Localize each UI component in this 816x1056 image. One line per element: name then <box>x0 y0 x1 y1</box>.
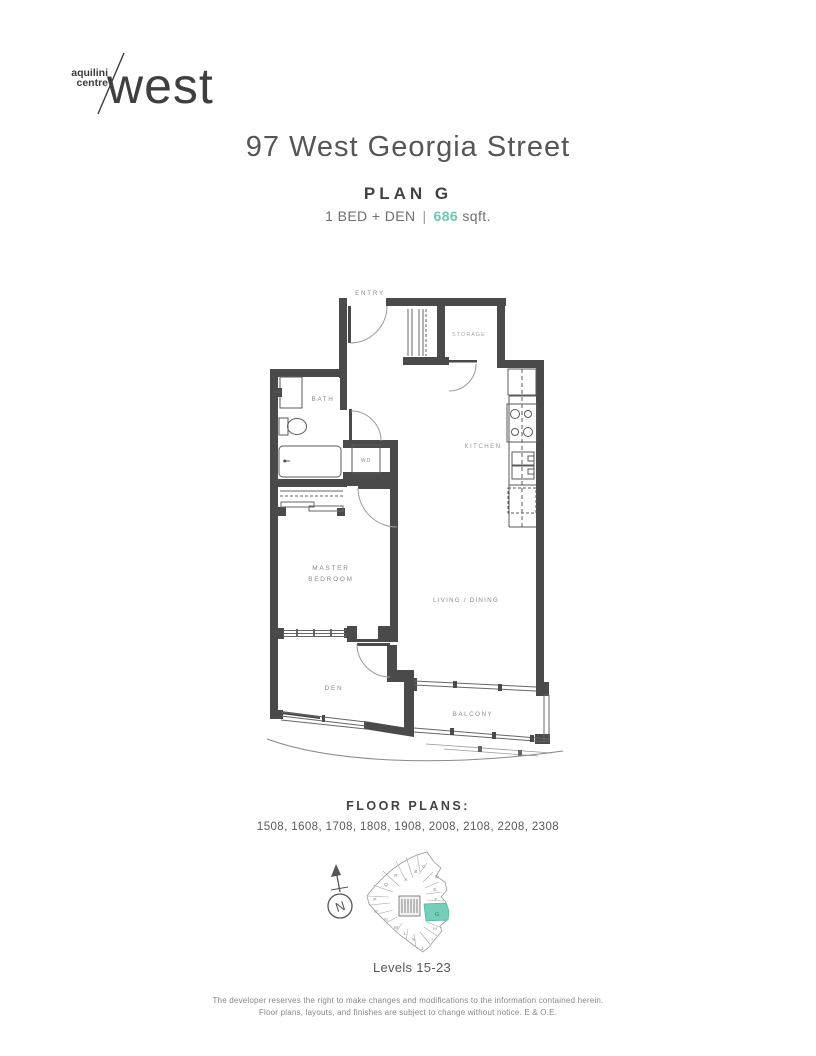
entry-door-arc <box>350 306 387 343</box>
floor-plan-drawing: ENTRY STORAGE BATH WD KITCHEN MASTER BED… <box>255 278 570 770</box>
bath-door-leaf <box>349 409 352 441</box>
kitchen-fixtures <box>507 369 537 527</box>
storage-door-leaf <box>449 360 477 363</box>
building-key-plan: G C D E F H I J K L M N O P Q R A B <box>367 852 449 952</box>
entry-door-leaf <box>348 306 351 343</box>
label-den: DEN <box>325 685 344 692</box>
den-door-arc <box>357 644 390 677</box>
svg-text:B: B <box>414 869 417 875</box>
label-master-1: MASTER <box>312 565 349 572</box>
svg-text:L: L <box>404 931 407 937</box>
svg-text:Q: Q <box>384 882 388 888</box>
north-compass: N <box>328 864 352 918</box>
logo-name: west <box>106 58 214 114</box>
highlighted-unit-letter: G <box>435 912 439 918</box>
disclaimer-line-2: Floor plans, layouts, and finishes are s… <box>0 1007 816 1019</box>
site-key-plan: N G C D E F H I J K <box>318 848 463 966</box>
plan-name: PLAN G <box>0 184 816 204</box>
plan-sqft-unit: sqft. <box>462 208 490 224</box>
svg-text:D: D <box>435 874 439 880</box>
toilet-bowl <box>288 419 307 435</box>
svg-text:N: N <box>384 917 388 923</box>
disclaimer-line-1: The developer reserves the right to make… <box>0 995 816 1007</box>
svg-text:R: R <box>394 873 398 879</box>
subtitle-separator: | <box>416 208 434 224</box>
label-kitchen: KITCHEN <box>465 443 502 450</box>
storage-door-arc <box>449 364 476 391</box>
page-title: 97 West Georgia Street <box>0 131 816 164</box>
svg-text:O: O <box>374 909 378 915</box>
walls <box>270 298 550 744</box>
levels-label: Levels 15-23 <box>312 960 512 975</box>
floor-plans-heading: FLOOR PLANS: <box>0 799 816 813</box>
plan-subtitle: 1 BED + DEN|686 sqft. <box>0 208 816 224</box>
label-master-2: BEDROOM <box>308 576 354 583</box>
svg-text:M: M <box>394 925 398 931</box>
label-balcony: BALCONY <box>453 711 494 718</box>
label-storage: STORAGE <box>452 332 486 338</box>
windows <box>267 629 563 761</box>
key-plan-core <box>399 896 420 916</box>
label-living-dining: LIVING / DINING <box>433 597 499 604</box>
north-letter: N <box>333 898 347 915</box>
svg-text:E: E <box>433 887 436 893</box>
den-door-leaf <box>357 643 390 646</box>
label-bath: BATH <box>312 396 335 403</box>
svg-text:H: H <box>433 926 437 932</box>
svg-text:C: C <box>422 864 426 870</box>
bedroom-door-leaf <box>358 486 397 489</box>
stove <box>507 404 537 442</box>
toilet-tank <box>279 418 288 435</box>
label-wd: WD <box>361 458 371 464</box>
building-edge-curve <box>267 739 563 761</box>
plan-sqft-value: 686 <box>434 208 459 224</box>
room-labels: ENTRY STORAGE BATH WD KITCHEN MASTER BED… <box>308 290 501 718</box>
logo: aquilini centre west <box>64 50 234 118</box>
svg-text:F: F <box>435 897 438 903</box>
bath-door-arc <box>351 411 381 441</box>
disclaimer: The developer reserves the right to make… <box>0 995 816 1018</box>
bath-sink <box>280 377 302 408</box>
flyer-page: aquilini centre west 97 West Georgia Str… <box>0 0 816 1056</box>
floor-plans-list: 1508, 1608, 1708, 1808, 1908, 2008, 2108… <box>0 821 816 833</box>
kitchen-sink <box>512 452 534 465</box>
label-entry: ENTRY <box>355 290 385 297</box>
logo-graphic: aquilini centre west <box>64 50 234 118</box>
logo-line2: centre <box>76 77 108 89</box>
svg-text:I: I <box>431 937 432 943</box>
plan-bed-count: 1 BED + DEN <box>325 208 415 224</box>
svg-text:P: P <box>373 897 376 903</box>
